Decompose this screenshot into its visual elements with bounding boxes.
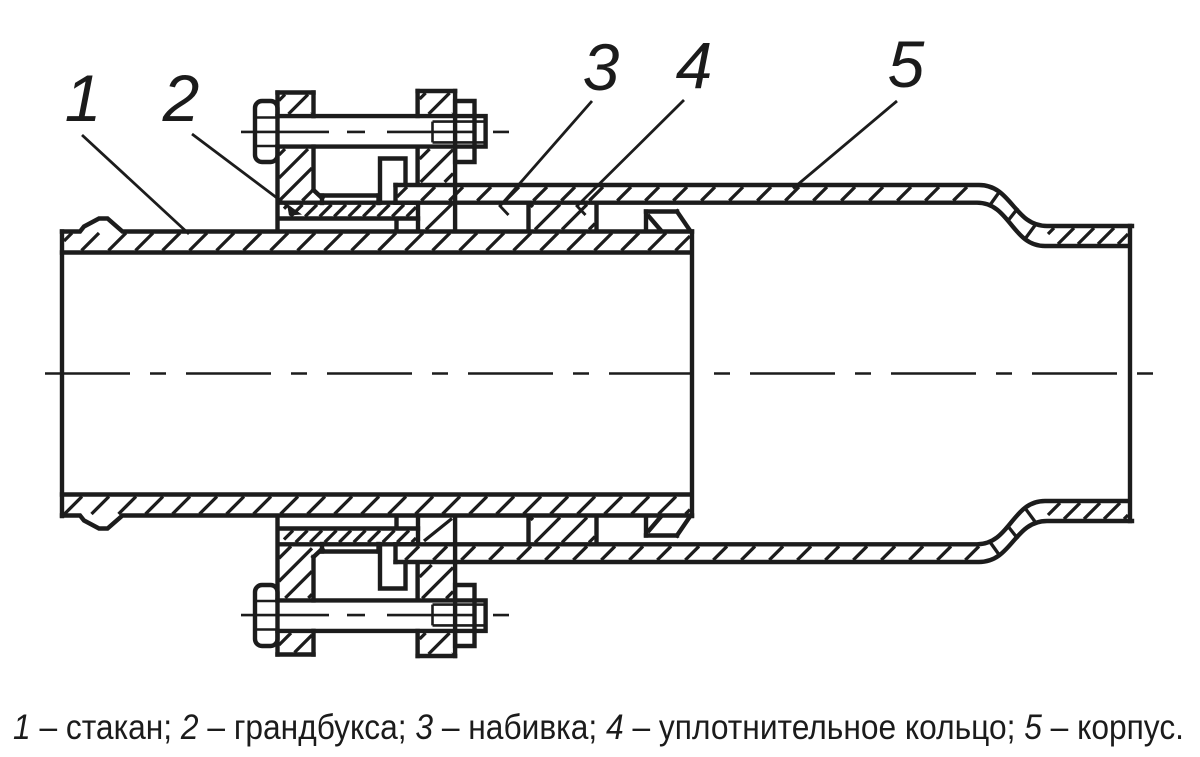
- svg-text:1 – стакан; 2 – грандбукса; 3: 1 – стакан; 2 – грандбукса; 3 – набивка;…: [13, 708, 1184, 747]
- svg-text:4: 4: [676, 29, 713, 103]
- svg-text:5: 5: [888, 27, 925, 101]
- svg-text:3: 3: [583, 30, 620, 104]
- svg-text:1: 1: [65, 61, 102, 135]
- svg-text:2: 2: [162, 61, 200, 135]
